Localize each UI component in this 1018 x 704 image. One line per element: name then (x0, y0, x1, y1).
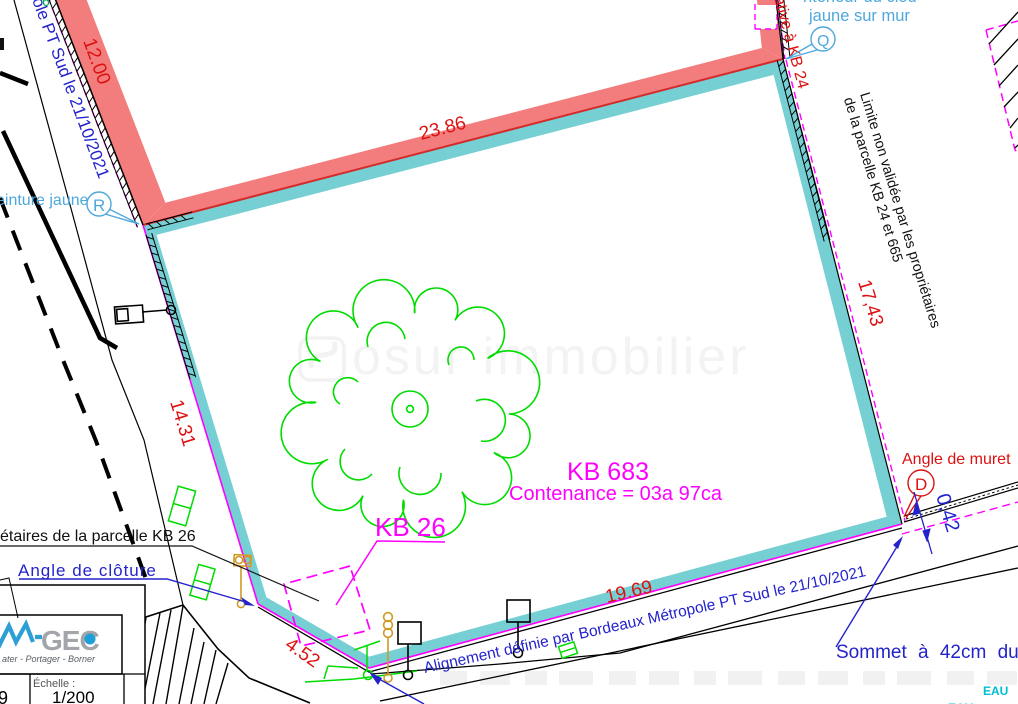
svg-text:KB 26: KB 26 (375, 512, 446, 542)
svg-text:jaune sur mur: jaune sur mur (808, 7, 910, 25)
svg-text:9: 9 (0, 688, 8, 704)
svg-text:étaires de la parcelle KB 26: étaires de la parcelle KB 26 (0, 528, 196, 545)
svg-text:ntérieur du clou: ntérieur du clou (803, 0, 917, 6)
svg-text:Sommet à 42cm du: Sommet à 42cm du (836, 642, 1018, 663)
svg-text:Contenance = 03a 97ca: Contenance = 03a 97ca (509, 483, 723, 505)
svg-text:R: R (93, 196, 105, 215)
svg-text:Angle de muret: Angle de muret (902, 451, 1011, 468)
svg-text:4.52: 4.52 (281, 634, 323, 672)
svg-text:Angle de clôture: Angle de clôture (18, 561, 157, 580)
svg-text:einture jaune: einture jaune (0, 192, 89, 209)
svg-text:17,43: 17,43 (853, 277, 887, 329)
svg-text:19.69: 19.69 (603, 577, 654, 608)
svg-text:Q: Q (817, 33, 829, 50)
svg-text:1/200: 1/200 (52, 688, 95, 704)
svg-text:6: 6 (42, 0, 50, 9)
svg-text:0,42: 0,42 (931, 491, 963, 535)
svg-text:ater - Portager - Borner: ater - Portager - Borner (2, 654, 96, 664)
svg-text:D: D (915, 475, 927, 494)
svg-text:KB 683: KB 683 (567, 458, 649, 486)
svg-text:EAU: EAU (983, 684, 1008, 698)
svg-text:osur immobilier: osur immobilier (352, 328, 750, 386)
svg-text:14.31: 14.31 (165, 397, 199, 449)
